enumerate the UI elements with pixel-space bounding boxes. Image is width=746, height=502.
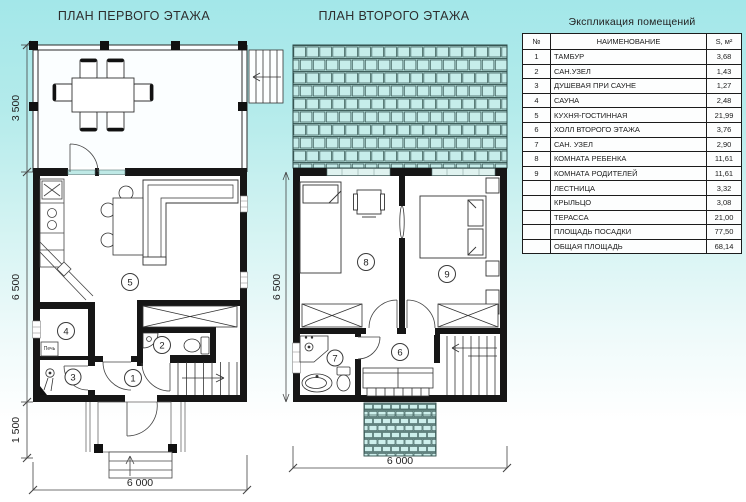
room-schedule-title: Экспликация помещений: [522, 16, 742, 28]
room-label-6: 6: [397, 348, 402, 359]
row-number: 1: [523, 50, 551, 65]
row-area: 11,61: [707, 152, 742, 167]
room-label-9: 9: [444, 270, 449, 281]
toilet-bowl: [337, 375, 350, 391]
wardrobe: [143, 306, 237, 327]
second-floor-plan: 6 500 6 000 8 9 6 7: [270, 0, 520, 502]
row-name: ТАМБУР: [551, 50, 707, 65]
row-name: ОБЩАЯ ПЛОЩАДЬ: [551, 239, 707, 254]
room-schedule: Экспликация помещений № НАИМЕНОВАНИЕ S, …: [522, 16, 742, 254]
table-row: КРЫЛЬЦО 3,08: [523, 195, 742, 210]
table-row: 4 САУНА 2,48: [523, 93, 742, 108]
roof-hatch: [293, 45, 507, 168]
drawing-sheet: ПЛАН ПЕРВОГО ЭТАЖА ПЛАН ВТОРОГО ЭТАЖА 3 …: [0, 0, 746, 502]
table-row: 5 КУХНЯ-ГОСТИННАЯ 21,99: [523, 108, 742, 123]
row-name: ЛЕСТНИЦА: [551, 181, 707, 196]
row-name: КРЫЛЬЦО: [551, 195, 707, 210]
table-row: ОБЩАЯ ПЛОЩАДЬ 68,14: [523, 239, 742, 254]
room-schedule-table: № НАИМЕНОВАНИЕ S, м² 1 ТАМБУР 3,68 2 СА: [522, 33, 742, 254]
table-row: 8 КОМНАТА РЕБЕНКА 11,61: [523, 152, 742, 167]
nightstand: [486, 261, 499, 276]
dim-house-width: 6 000: [127, 477, 153, 489]
row-name: ТЕРАССА: [551, 210, 707, 225]
room-label-5: 5: [127, 278, 132, 289]
terrace: [29, 41, 247, 172]
row-name: КУХНЯ-ГОСТИННАЯ: [551, 108, 707, 123]
row-number: [523, 181, 551, 196]
plan2-left-dimension: [283, 172, 289, 402]
toilet-bowl: [184, 339, 200, 352]
row-name: ХОЛЛ ВТОРОГО ЭТАЖА: [551, 122, 707, 137]
row-number: 8: [523, 152, 551, 167]
row-area: 2,48: [707, 93, 742, 108]
table-row: 2 САН.УЗЕЛ 1,43: [523, 64, 742, 79]
row-area: 3,76: [707, 122, 742, 137]
dim-floor2-width: 6 000: [387, 455, 413, 467]
stove-label: Печь: [44, 346, 56, 352]
first-floor-plan: 3 500 6 500 1 500 6 000: [0, 0, 300, 502]
row-number: 2: [523, 64, 551, 79]
room-label-8: 8: [363, 258, 368, 269]
table-row: 3 ДУШЕВАЯ ПРИ САУНЕ 1,27: [523, 79, 742, 94]
column-header-number: №: [523, 34, 551, 50]
dim-house-height: 6 500: [10, 274, 22, 300]
row-number: [523, 225, 551, 240]
row-area: 3,68: [707, 50, 742, 65]
row-name: ДУШЕВАЯ ПРИ САУНЕ: [551, 79, 707, 94]
row-area: 77,50: [707, 225, 742, 240]
room-label-7: 7: [332, 354, 337, 365]
column-header-area: S, м²: [707, 34, 742, 50]
row-number: 4: [523, 93, 551, 108]
table-row: 7 САН. УЗЕЛ 2,90: [523, 137, 742, 152]
table-header-row: № НАИМЕНОВАНИЕ S, м²: [523, 34, 742, 50]
table-row: 9 КОМНАТА РОДИТЕЛЕЙ 11,61: [523, 166, 742, 181]
row-number: [523, 210, 551, 225]
toilet-tank: [201, 337, 209, 354]
window: [99, 170, 125, 175]
nightstand: [486, 178, 499, 193]
table-row: 1 ТАМБУР 3,68: [523, 50, 742, 65]
table-row: ЛЕСТНИЦА 3,32: [523, 181, 742, 196]
row-number: [523, 195, 551, 210]
open-door-leaf: [400, 206, 404, 238]
dim-porch-height: 1 500: [10, 417, 22, 443]
room-label-2: 2: [159, 341, 164, 352]
desk-chair: [354, 190, 385, 217]
room-label-3: 3: [70, 373, 75, 384]
row-number: 3: [523, 79, 551, 94]
table-row: ТЕРАССА 21,00: [523, 210, 742, 225]
row-area: 3,08: [707, 195, 742, 210]
room-label-1: 1: [130, 374, 135, 385]
row-name: КОМНАТА РОДИТЕЛЕЙ: [551, 166, 707, 181]
dim-floor2-height: 6 500: [271, 274, 283, 300]
table-row: ПЛОЩАДЬ ПОСАДКИ 77,50: [523, 225, 742, 240]
terrace-door-glass: [68, 170, 95, 175]
row-area: 1,27: [707, 79, 742, 94]
row-area: 68,14: [707, 239, 742, 254]
row-name: ПЛОЩАДЬ ПОСАДКИ: [551, 225, 707, 240]
porch-roof-hatch: [364, 403, 436, 456]
window: [293, 343, 301, 373]
row-name: САУНА: [551, 93, 707, 108]
room-schedule-body: 1 ТАМБУР 3,68 2 САН.УЗЕЛ 1,43 3 ДУШЕВАЯ …: [523, 50, 742, 254]
single-bed: [300, 182, 341, 273]
dim-terrace-height: 3 500: [10, 95, 22, 121]
row-area: 21,00: [707, 210, 742, 225]
table-row: 6 ХОЛЛ ВТОРОГО ЭТАЖА 3,76: [523, 122, 742, 137]
row-area: 11,61: [707, 166, 742, 181]
row-number: [523, 239, 551, 254]
room-label-4: 4: [63, 327, 68, 338]
row-area: 1,43: [707, 64, 742, 79]
hall-bench: [363, 368, 433, 396]
porch: [86, 402, 185, 478]
row-number: 6: [523, 122, 551, 137]
row-area: 3,32: [707, 181, 742, 196]
row-number: 9: [523, 166, 551, 181]
row-name: КОМНАТА РЕБЕНКА: [551, 152, 707, 167]
row-number: 7: [523, 137, 551, 152]
row-area: 21,99: [707, 108, 742, 123]
row-area: 2,90: [707, 137, 742, 152]
toilet-tank: [337, 367, 350, 375]
row-number: 5: [523, 108, 551, 123]
row-name: САН.УЗЕЛ: [551, 64, 707, 79]
column-header-name: НАИМЕНОВАНИЕ: [551, 34, 707, 50]
row-name: САН. УЗЕЛ: [551, 137, 707, 152]
dining-table: [72, 78, 134, 112]
